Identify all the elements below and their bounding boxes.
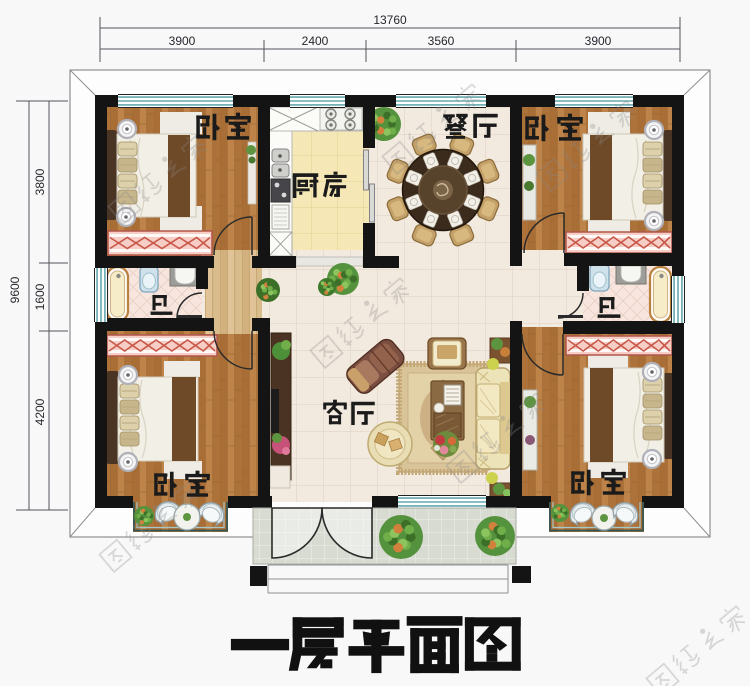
svg-text:13760: 13760 [373,13,407,27]
svg-text:3900: 3900 [585,34,612,48]
svg-text:4200: 4200 [33,398,47,425]
svg-text:3900: 3900 [169,34,196,48]
svg-text:3800: 3800 [33,168,47,195]
svg-text:2400: 2400 [302,34,329,48]
svg-text:3560: 3560 [428,34,455,48]
svg-text:1600: 1600 [33,283,47,310]
svg-text:9600: 9600 [8,276,22,303]
